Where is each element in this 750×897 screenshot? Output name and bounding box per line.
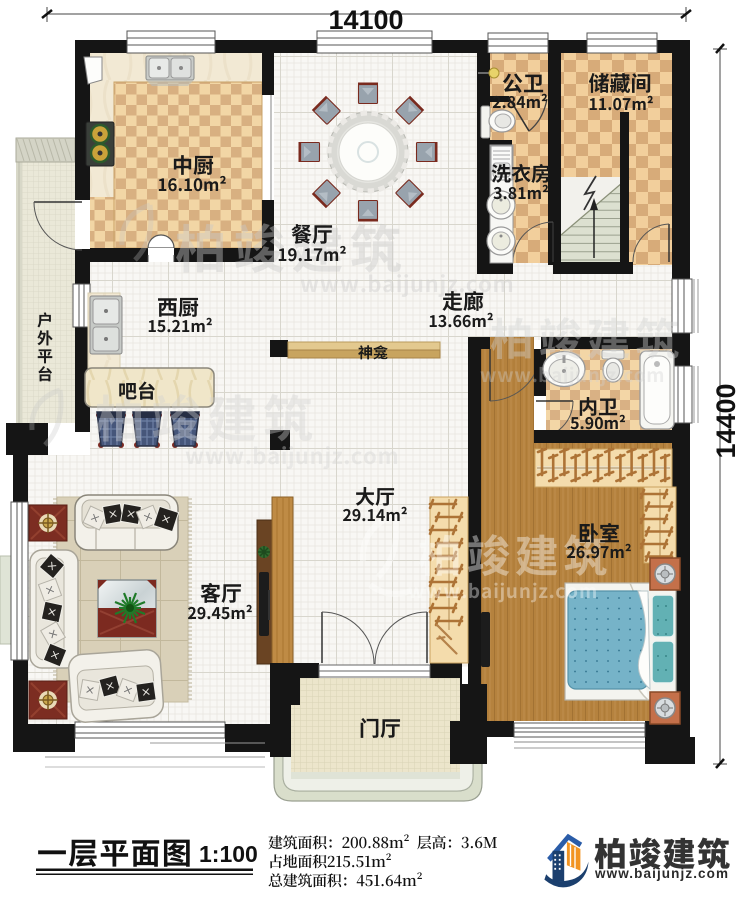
svg-text:14100: 14100 xyxy=(328,5,403,35)
svg-text:14400: 14400 xyxy=(711,383,741,458)
svg-text:1:100: 1:100 xyxy=(199,841,258,867)
svg-text:www.baijunjz.com: www.baijunjz.com xyxy=(594,866,729,881)
